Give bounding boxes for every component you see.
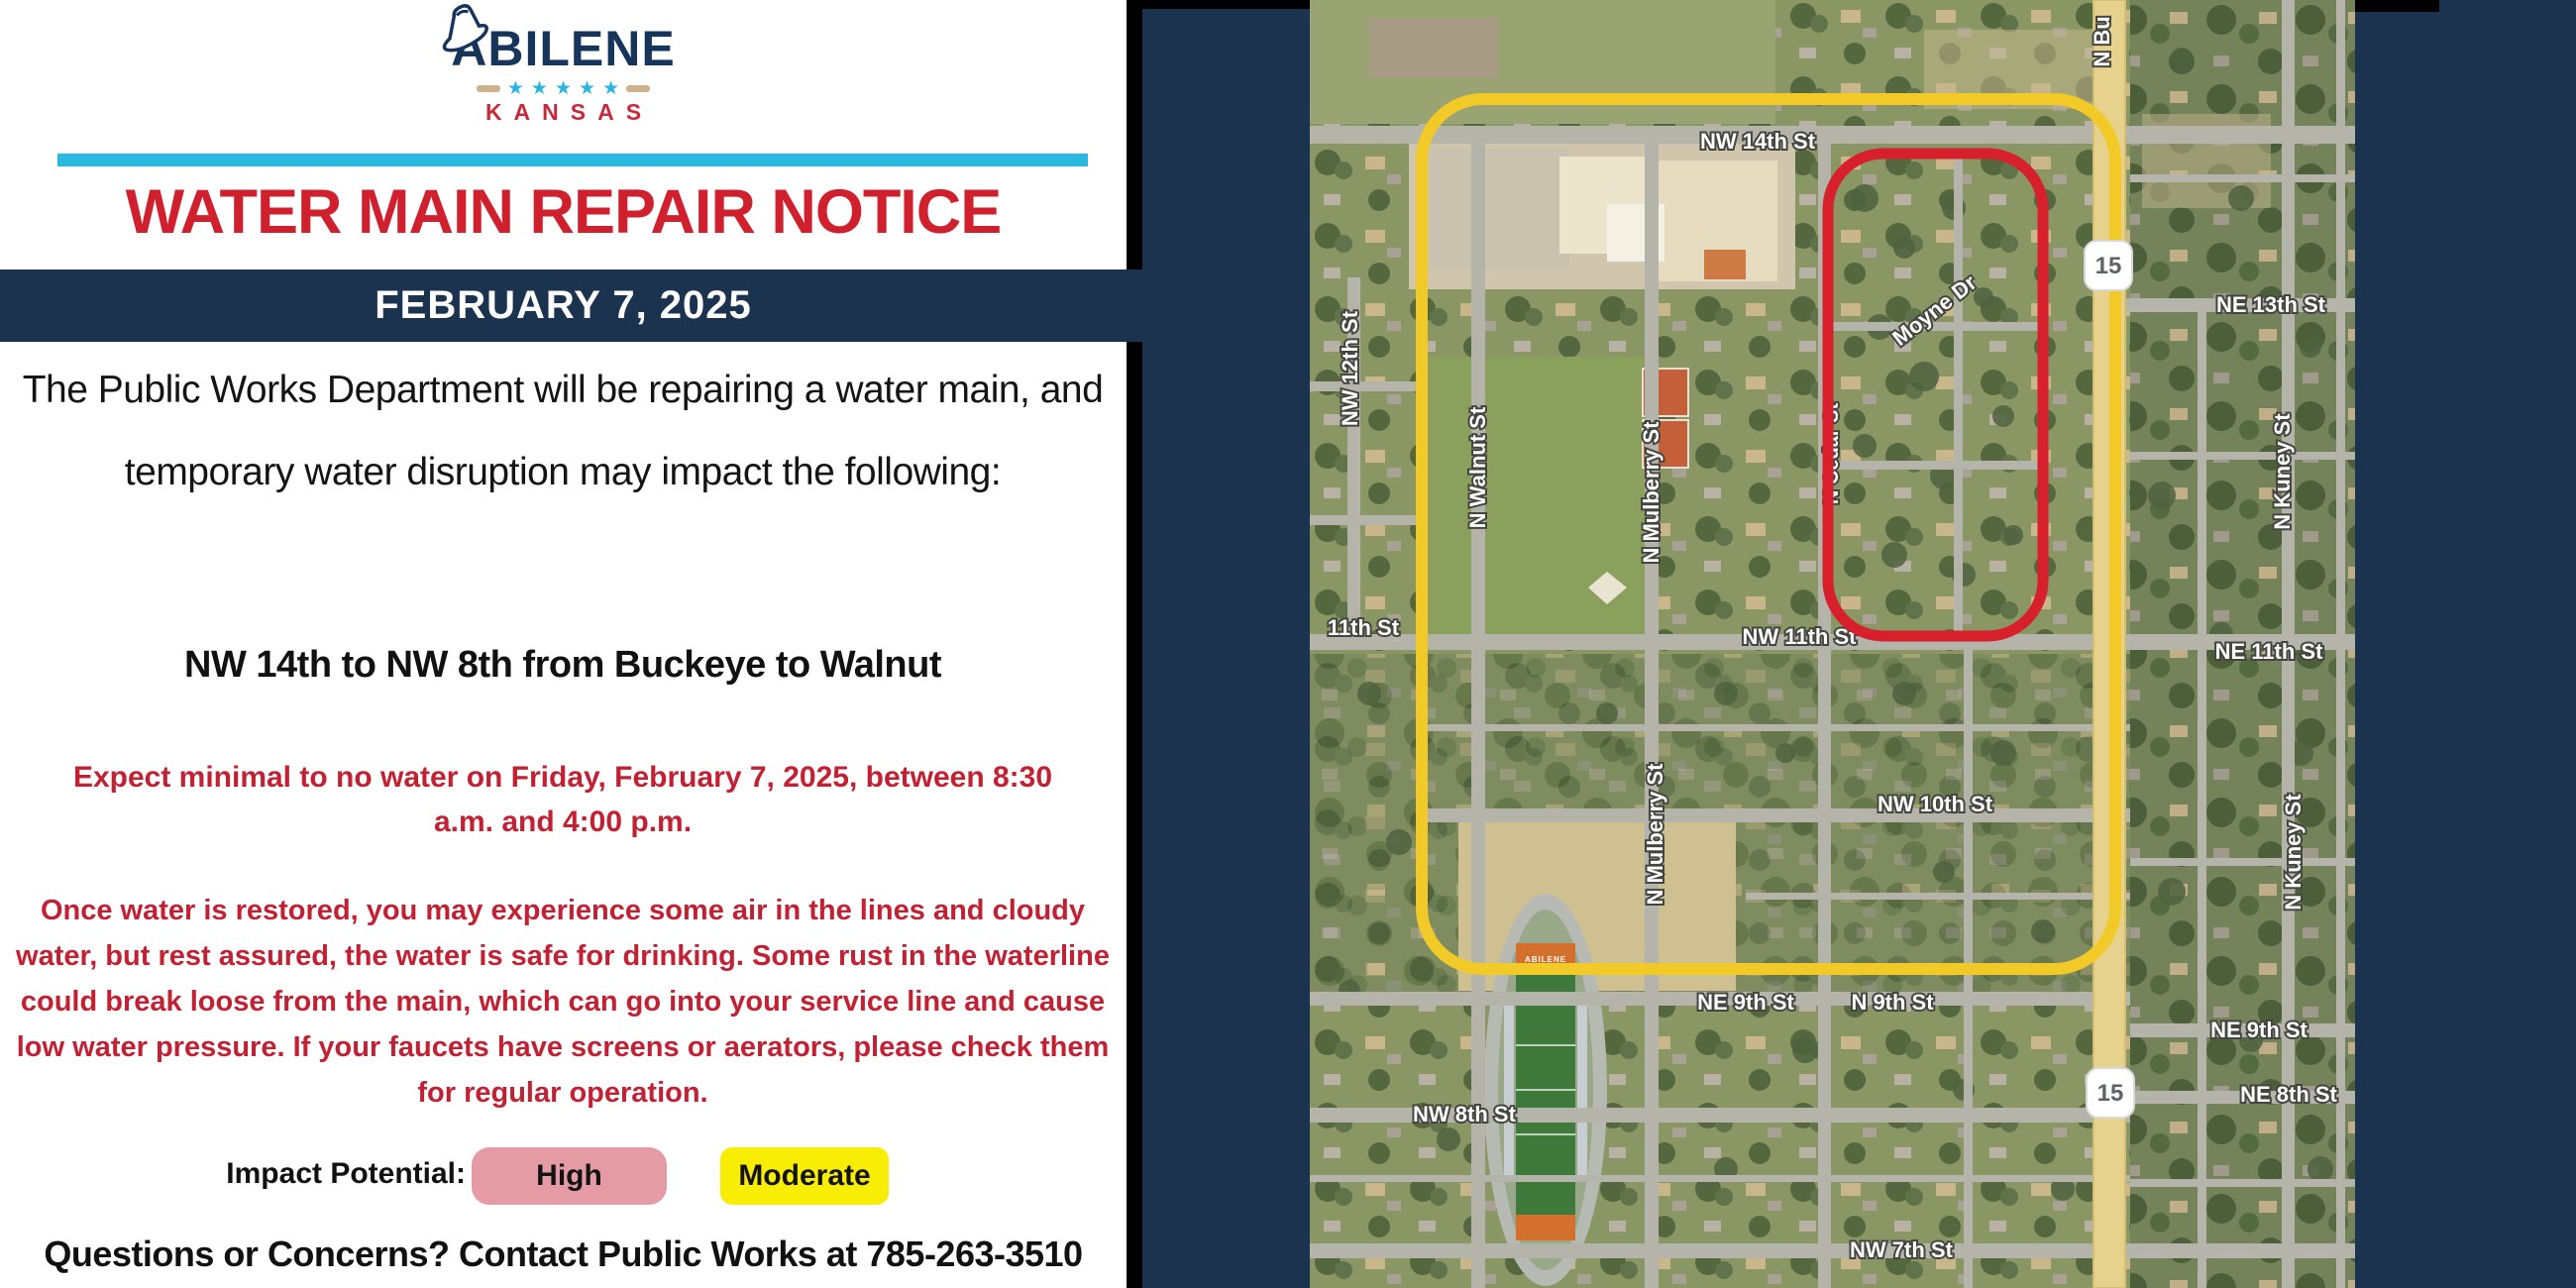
street-label: 11th St — [1328, 615, 1400, 640]
star-icon: ★ — [507, 79, 524, 98]
impact-badge-moderate: Moderate — [720, 1147, 889, 1205]
black-top-strip-middle — [1127, 0, 1310, 9]
street-label: N Mulberry St — [1639, 421, 1664, 564]
star-icon: ★ — [555, 79, 572, 98]
logo-dash-left — [477, 85, 500, 92]
street-label: NW 7th St — [1850, 1237, 1954, 1262]
street-label: NW 10th St — [1878, 792, 1993, 816]
star-icon: ★ — [579, 79, 595, 98]
city-logo: ABILENE ★ ★ ★ ★ ★ KANSAS — [0, 6, 1127, 126]
logo-state-name: KANSAS — [0, 99, 1127, 126]
date-banner-text: FEBRUARY 7, 2025 — [375, 283, 752, 328]
street-label: N Bu — [2090, 16, 2114, 66]
vertical-black-divider — [1127, 0, 1142, 1288]
cyan-divider-bar — [57, 154, 1088, 166]
logo-stars: ★ ★ ★ ★ ★ — [0, 79, 1127, 98]
highway-shield: 15 — [2085, 241, 2132, 290]
cowboy-hat-icon — [425, 0, 502, 62]
date-banner: FEBRUARY 7, 2025 — [0, 269, 1310, 342]
satellite-map: ABILENE NW 14th St N — [1310, 0, 2355, 1288]
contact-line: Questions or Concerns? Contact Public Wo… — [0, 1234, 1127, 1275]
football-stadium: ABILENE — [1484, 894, 1607, 1286]
street-label: NW 8th St — [1413, 1102, 1517, 1127]
street-label: NE 9th St — [1697, 990, 1794, 1015]
street-label: N Kuney St — [2281, 794, 2306, 911]
orange-roof-building — [1704, 250, 1746, 279]
street-label: NE 9th St — [2210, 1018, 2308, 1042]
street-label: N Kuney St — [2270, 413, 2295, 530]
star-icon: ★ — [531, 79, 548, 98]
logo-dash-right — [626, 85, 650, 92]
navy-band-middle — [1142, 0, 1310, 1288]
street-label: NW 12th St — [1338, 310, 1362, 426]
outage-notice: Expect minimal to no water on Friday, Fe… — [48, 755, 1078, 844]
impact-badge-high: High — [472, 1147, 667, 1205]
street-label: NE 8th St — [2240, 1082, 2337, 1107]
grass-field — [1427, 357, 1653, 644]
street-label: NW 11th St — [1743, 624, 1858, 649]
intro-paragraph: The Public Works Department will be repa… — [18, 349, 1108, 513]
stadium-sign-text: ABILENE — [1525, 955, 1566, 964]
street-label: NW 14th St — [1700, 129, 1816, 154]
highway-shield-number: 15 — [2095, 253, 2122, 279]
restoration-notice: Once water is restored, you may experien… — [8, 888, 1118, 1116]
street-label: NE 11th St — [2215, 639, 2323, 664]
impact-potential-label: Impact Potential: — [149, 1157, 466, 1191]
building — [1369, 18, 1498, 77]
street-label: N Mulberry St — [1643, 763, 1667, 906]
navy-band-right — [2355, 0, 2576, 1288]
street-label: N 9th St — [1851, 990, 1934, 1015]
affected-area-line: NW 14th to NW 8th from Buckeye to Walnut — [18, 644, 1108, 687]
street-label: NE 13th St — [2216, 292, 2326, 317]
notice-title: WATER MAIN REPAIR NOTICE — [0, 176, 1127, 248]
street-label: N Walnut St — [1465, 406, 1490, 528]
star-icon: ★ — [602, 79, 619, 98]
notice-flyer-panel: ABILENE ★ ★ ★ ★ ★ KANSAS WATER MAIN REPA… — [0, 0, 1127, 1288]
black-top-strip-right — [2355, 0, 2439, 12]
parking-lot — [1421, 149, 1569, 269]
highway-shield-number: 15 — [2097, 1080, 2124, 1107]
highway-shield: 15 — [2087, 1068, 2134, 1118]
